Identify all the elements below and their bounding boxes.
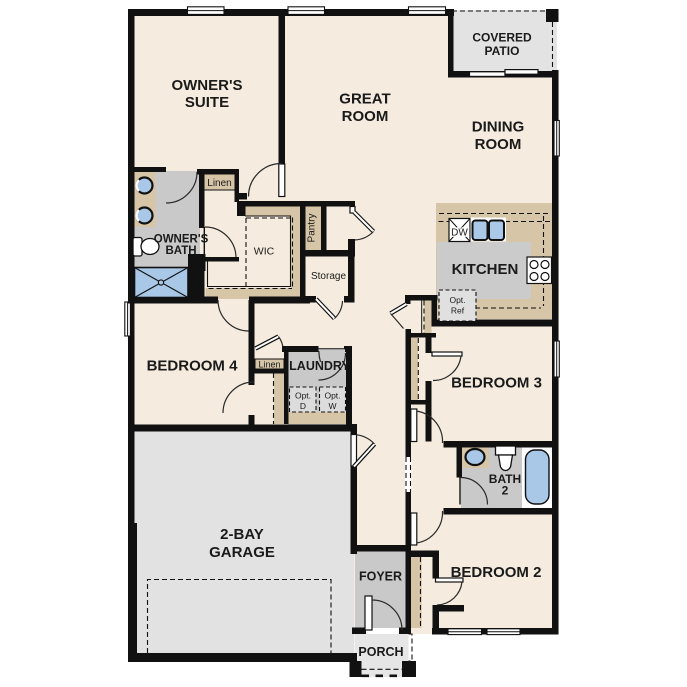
- svg-text:Ref: Ref: [451, 306, 465, 316]
- svg-text:WIC: WIC: [254, 246, 275, 258]
- svg-text:SUITE: SUITE: [185, 94, 229, 111]
- svg-text:Linen: Linen: [258, 360, 280, 370]
- svg-text:W: W: [328, 401, 336, 411]
- svg-text:FOYER: FOYER: [359, 570, 402, 584]
- svg-text:Storage: Storage: [311, 271, 346, 282]
- svg-text:Opt.: Opt.: [324, 391, 340, 401]
- svg-text:PATIO: PATIO: [485, 44, 520, 58]
- svg-text:Opt.: Opt.: [449, 295, 465, 305]
- svg-text:OWNER'S: OWNER'S: [171, 77, 242, 94]
- svg-text:Opt.: Opt.: [295, 391, 311, 401]
- svg-text:OWNER'S: OWNER'S: [154, 234, 209, 246]
- svg-text:DINING: DINING: [472, 119, 525, 136]
- svg-text:COVERED: COVERED: [472, 31, 532, 45]
- svg-text:LAUNDRY: LAUNDRY: [289, 359, 350, 373]
- svg-text:PORCH: PORCH: [358, 645, 403, 659]
- svg-text:2-BAY: 2-BAY: [220, 526, 264, 543]
- svg-text:ROOM: ROOM: [342, 108, 389, 125]
- svg-text:DW: DW: [451, 228, 468, 239]
- svg-text:D: D: [300, 401, 306, 411]
- svg-text:2: 2: [502, 484, 509, 498]
- svg-text:Linen: Linen: [207, 178, 231, 189]
- svg-text:GARAGE: GARAGE: [209, 544, 275, 561]
- svg-text:Pantry: Pantry: [307, 214, 318, 243]
- svg-text:KITCHEN: KITCHEN: [452, 261, 519, 278]
- svg-text:BEDROOM 4: BEDROOM 4: [147, 358, 239, 375]
- svg-text:BATH: BATH: [165, 245, 196, 257]
- svg-text:GREAT: GREAT: [339, 91, 390, 108]
- svg-text:ROOM: ROOM: [475, 136, 522, 153]
- svg-text:BEDROOM 2: BEDROOM 2: [451, 564, 542, 581]
- svg-text:BEDROOM 3: BEDROOM 3: [451, 375, 542, 392]
